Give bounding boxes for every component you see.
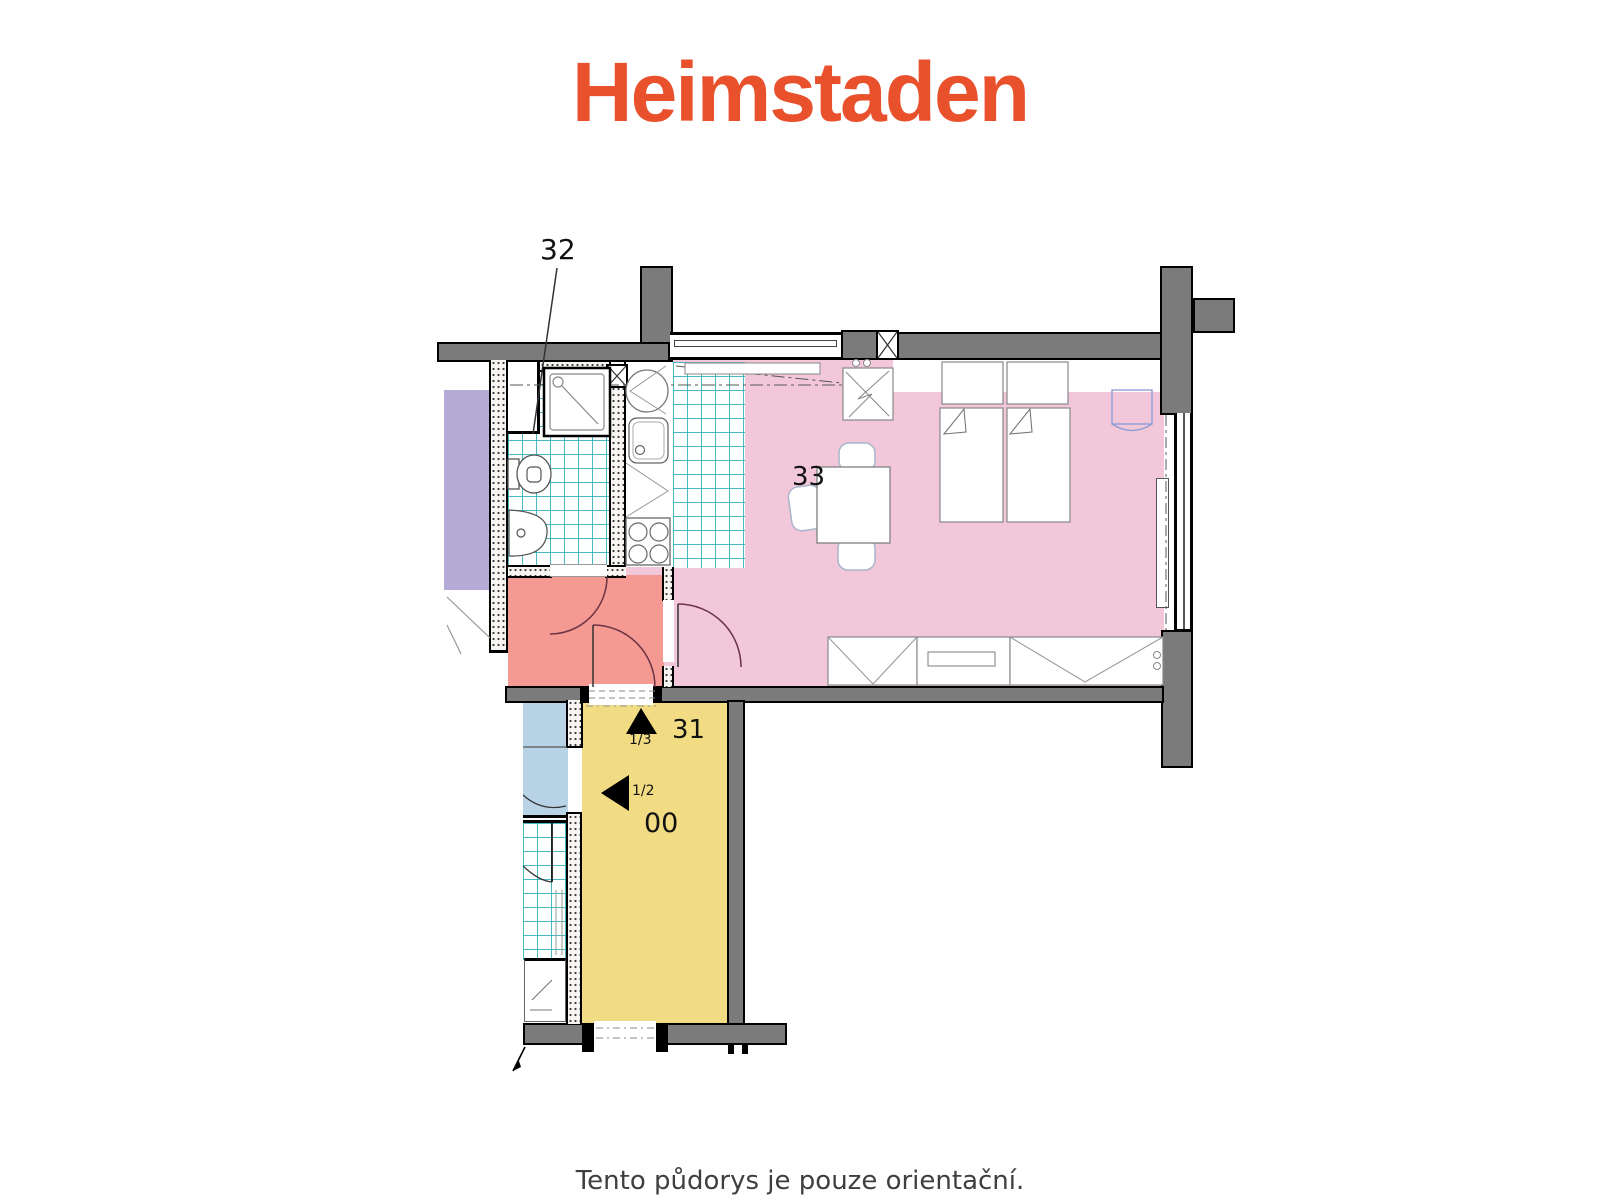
- stove-burner-4: [650, 545, 668, 563]
- neighbor-shaft-lines: [556, 890, 562, 955]
- wardrobe-2: [1010, 637, 1163, 685]
- fixture-knob-2: [864, 360, 871, 367]
- fixture-knob-1: [853, 360, 860, 367]
- room-label-bathroom: 32: [540, 233, 576, 266]
- stair-threshold: [596, 1028, 654, 1038]
- window-sill-shelf: [685, 363, 820, 374]
- living-door-arc: [678, 604, 741, 667]
- bed1-headboard: [942, 362, 1003, 404]
- plan-linework: [0, 0, 1600, 1200]
- neighbor-door-arc: [523, 866, 552, 882]
- stove-burner-2: [650, 523, 668, 541]
- nightstand-arc: [1112, 424, 1152, 431]
- washbasin: [509, 510, 547, 556]
- neighbor-lowbox-marks: [530, 980, 552, 1010]
- stair-arrow-up: [626, 708, 657, 734]
- bed1: [940, 408, 1003, 522]
- neighbor-bath-door-arc: [523, 795, 566, 808]
- floor-plan: 32 33 31 00 1/3 1/2: [0, 0, 1600, 1200]
- entrance-door-arc: [593, 625, 655, 687]
- room-label-living: 33: [792, 462, 825, 492]
- stove-burner-3: [629, 545, 647, 563]
- room-label-landing: 00: [644, 808, 678, 839]
- entrance-threshold: [589, 691, 655, 698]
- disclaimer-caption: Tento půdorys je pouze orientační.: [0, 1166, 1600, 1196]
- stair-fraction-up: 1/3: [629, 732, 652, 748]
- cabinet-mark-mid: [626, 463, 668, 517]
- kitchen-sink: [629, 418, 668, 463]
- dining-table: [817, 467, 890, 543]
- floorplan-page: { "logo": { "text": "Heimstaden", "color…: [0, 0, 1600, 1200]
- stair-fraction-half: 1/2: [632, 783, 655, 799]
- neighbor-cut-lines: [447, 597, 490, 654]
- wardrobe-1: [828, 637, 917, 685]
- dresser-drawer: [928, 652, 995, 666]
- nightstand: [1112, 390, 1152, 424]
- washing-machine: [626, 370, 668, 412]
- shaft-x: [878, 332, 897, 358]
- bed2-headboard: [1007, 362, 1068, 404]
- stove-burner-1: [629, 523, 647, 541]
- toilet-bowl: [517, 455, 551, 493]
- stair-arrow-left: [601, 775, 629, 811]
- room-label-staircase: 31: [672, 715, 705, 745]
